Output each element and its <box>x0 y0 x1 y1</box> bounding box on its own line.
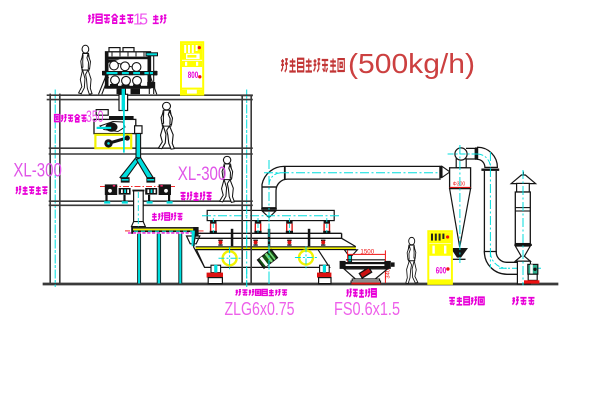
svg-text:XL-300: XL-300 <box>178 163 227 185</box>
svg-text:600: 600 <box>436 266 446 277</box>
svg-text:XL-300: XL-300 <box>13 160 62 182</box>
svg-text:800: 800 <box>188 70 198 81</box>
svg-text:FS0.6x1.5: FS0.6x1.5 <box>334 298 400 319</box>
svg-text:ZLG6x0.75: ZLG6x0.75 <box>225 298 295 319</box>
svg-text:Φ300: Φ300 <box>453 182 466 188</box>
svg-text:1500: 1500 <box>360 248 374 255</box>
svg-text:350: 350 <box>86 107 104 126</box>
svg-text:1.5: 1.5 <box>133 12 148 29</box>
svg-text:(500kg/h): (500kg/h) <box>348 48 475 79</box>
